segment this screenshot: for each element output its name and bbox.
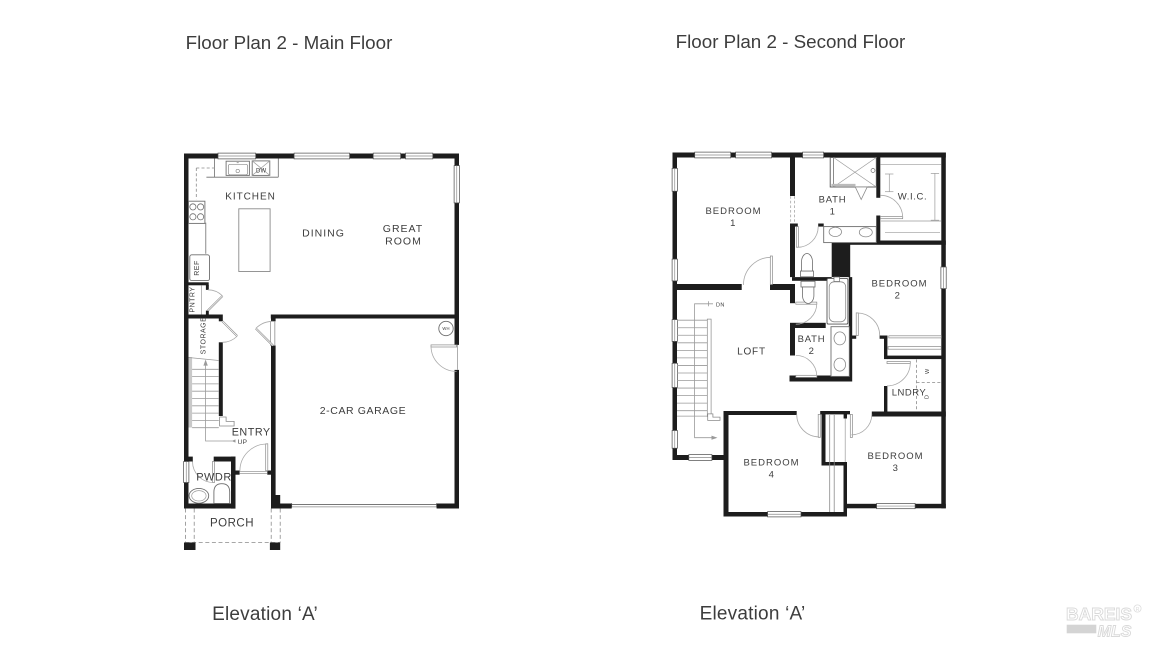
svg-text:3: 3 — [893, 463, 899, 474]
svg-text:2-CAR GARAGE: 2-CAR GARAGE — [320, 405, 407, 417]
svg-text:Floor Plan 2 - Main Floor: Floor Plan 2 - Main Floor — [186, 32, 393, 53]
svg-text:STORAGE: STORAGE — [200, 317, 207, 355]
svg-text:R: R — [1136, 607, 1140, 613]
svg-text:PWDR: PWDR — [196, 471, 232, 483]
svg-text:Elevation ‘A’: Elevation ‘A’ — [700, 604, 806, 625]
svg-text:ENTRY: ENTRY — [232, 426, 271, 438]
svg-text:4: 4 — [769, 470, 775, 481]
svg-text:Floor Plan 2 - Second Floor: Floor Plan 2 - Second Floor — [676, 31, 906, 52]
svg-text:BEDROOM: BEDROOM — [743, 458, 799, 469]
svg-text:DN: DN — [716, 303, 725, 309]
svg-text:ROOM: ROOM — [385, 235, 422, 247]
svg-text:2: 2 — [895, 291, 901, 302]
svg-text:WH: WH — [442, 326, 449, 331]
svg-text:BAREIS: BAREIS — [1066, 604, 1132, 624]
svg-text:W.I.C.: W.I.C. — [898, 192, 927, 203]
svg-text:DINING: DINING — [302, 228, 345, 240]
svg-text:1: 1 — [830, 207, 836, 218]
svg-text:Elevation ‘A’: Elevation ‘A’ — [212, 604, 318, 625]
svg-text:LNDRY: LNDRY — [892, 387, 927, 398]
svg-text:2: 2 — [809, 346, 815, 357]
svg-text:W: W — [925, 368, 931, 374]
svg-text:PORCH: PORCH — [210, 517, 254, 529]
svg-text:BEDROOM: BEDROOM — [871, 279, 927, 290]
svg-text:UP: UP — [238, 439, 248, 446]
svg-text:BATH: BATH — [798, 334, 826, 345]
svg-text:MLS: MLS — [1098, 624, 1132, 641]
svg-text:REF: REF — [194, 260, 201, 276]
svg-text:BEDROOM: BEDROOM — [705, 206, 761, 217]
svg-text:BATH: BATH — [819, 195, 847, 206]
svg-text:DW: DW — [256, 169, 267, 175]
svg-text:KITCHEN: KITCHEN — [225, 191, 276, 202]
svg-text:LOFT: LOFT — [737, 346, 766, 357]
svg-text:GREAT: GREAT — [383, 223, 423, 235]
svg-text:1: 1 — [730, 218, 736, 229]
svg-text:PNTRY: PNTRY — [189, 286, 196, 312]
svg-text:BEDROOM: BEDROOM — [867, 451, 923, 462]
